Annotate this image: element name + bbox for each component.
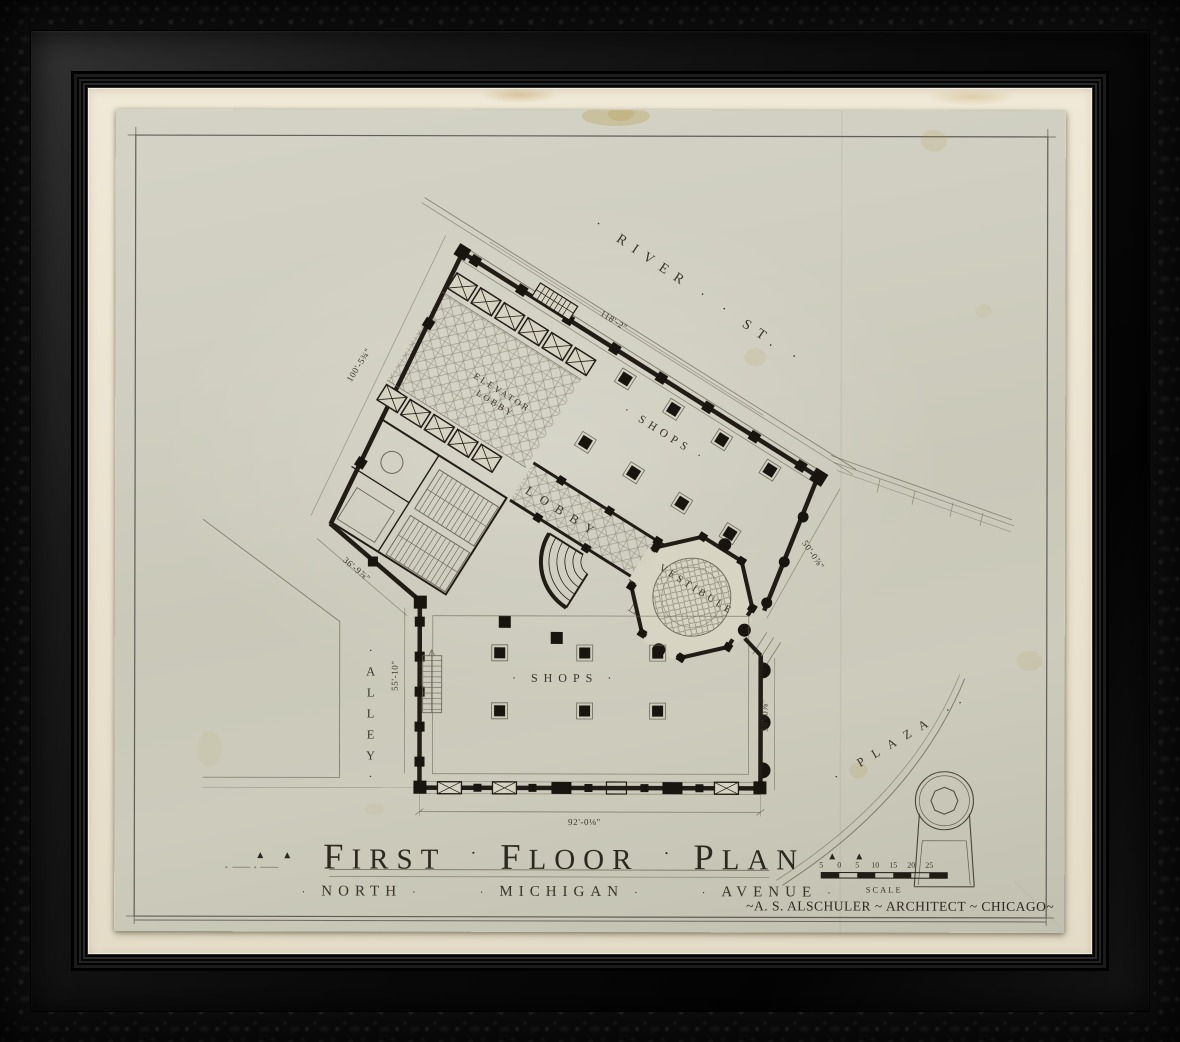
title-separator: ·	[470, 842, 476, 863]
avenue-word-north: North	[321, 883, 402, 900]
dim-east-side: 50'-0⅞"	[760, 699, 770, 732]
word-dot: ·	[827, 887, 837, 899]
stair-pier	[551, 632, 563, 644]
dim-southwest-wall: 36'-9⅞"	[341, 555, 372, 584]
word-dot: ·	[702, 887, 712, 899]
dim-northeast-side: 50'-0⅞"	[800, 538, 827, 571]
stair-pier	[499, 616, 511, 628]
sheet-title: ▴ ▴ First · Floor · Plan ▴ ▴	[232, 835, 896, 878]
framed-floor-plan: ELEVATOR LOBBY · SHOPS · LOBBY	[0, 0, 1180, 1042]
paper-creases	[840, 111, 1062, 933]
drawing-sheet: ELEVATOR LOBBY · SHOPS · LOBBY	[114, 109, 1066, 933]
word-dot: ·	[634, 887, 644, 899]
dim-south-side: 92'-0⅛"	[568, 817, 601, 827]
avenue-word-group: · Michigan ·	[480, 884, 644, 901]
dim-alley-side: 55'-10"	[390, 660, 400, 691]
title-word-plan: Plan	[693, 836, 805, 878]
title-word-floor: Floor	[500, 836, 639, 878]
title-flourish-right: ▴ ▴	[829, 848, 871, 863]
title-separator: ·	[663, 843, 669, 864]
dim-west-wall: 100'-5¾"	[344, 346, 373, 383]
title-flourish-left: ▴ ▴	[257, 847, 299, 862]
architect-signature: ~A. S. Alschuler ~ Architect ~ Chicago~	[740, 898, 1060, 915]
alley-lot-lines	[202, 519, 414, 787]
mat-board: ELEVATOR LOBBY · SHOPS · LOBBY	[88, 88, 1092, 954]
floor-plan-drawing: ELEVATOR LOBBY · SHOPS · LOBBY	[114, 109, 1066, 933]
lower-shops-label: · SHOPS ·	[512, 671, 617, 685]
scale-tick-6: 25	[925, 861, 933, 870]
word-dot: ·	[302, 886, 312, 898]
alley-street-label: ·ALLEY·	[362, 644, 377, 791]
alley-stair	[423, 650, 442, 713]
dim-river-wall: 118'-2"	[599, 308, 630, 333]
paper-stains	[197, 109, 1043, 817]
service-stair	[386, 470, 499, 592]
scale-tick-5: 20	[907, 861, 915, 870]
word-dot: ·	[480, 886, 490, 898]
plaza-monument	[914, 772, 974, 887]
word-dot: ·	[412, 886, 422, 898]
avenue-word-group: · North ·	[302, 883, 422, 900]
river-street-label: · RIVER · · ST. ·	[592, 217, 807, 370]
street-stair	[532, 283, 578, 320]
avenue-word-michigan: Michigan	[499, 884, 624, 901]
title-word-first: First	[323, 835, 446, 877]
